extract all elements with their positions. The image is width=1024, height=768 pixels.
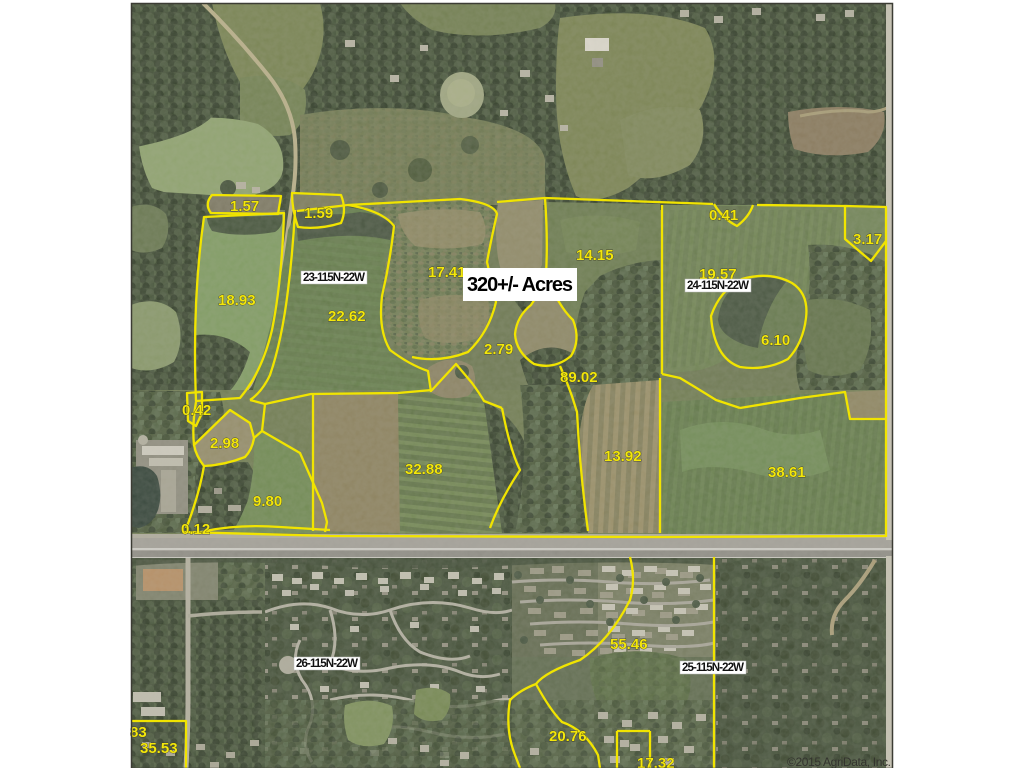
svg-text:25-115N-22W: 25-115N-22W — [682, 662, 744, 674]
svg-text:32.88: 32.88 — [405, 461, 443, 478]
svg-text:9.80: 9.80 — [253, 493, 282, 510]
svg-text:320+/- Acres: 320+/- Acres — [467, 274, 573, 296]
svg-text:13.92: 13.92 — [604, 448, 642, 465]
svg-text:6.10: 6.10 — [761, 332, 790, 349]
svg-text:©2015 AgriData, Inc.: ©2015 AgriData, Inc. — [787, 755, 891, 768]
svg-text:3.17: 3.17 — [853, 231, 882, 248]
svg-text:17.32: 17.32 — [637, 755, 675, 768]
svg-text:22.62: 22.62 — [328, 308, 366, 325]
svg-text:18.93: 18.93 — [218, 292, 256, 309]
svg-text:0.42: 0.42 — [182, 402, 211, 419]
svg-text:83: 83 — [130, 724, 147, 741]
svg-text:23-115N-22W: 23-115N-22W — [303, 272, 365, 284]
svg-text:2.98: 2.98 — [210, 435, 239, 452]
svg-text:55.46: 55.46 — [610, 636, 648, 653]
svg-text:89.02: 89.02 — [560, 369, 598, 386]
svg-text:1.57: 1.57 — [230, 198, 259, 215]
svg-text:14.15: 14.15 — [576, 247, 614, 264]
svg-text:1.59: 1.59 — [304, 205, 333, 222]
svg-text:35.53: 35.53 — [140, 740, 178, 757]
svg-text:24-115N-22W: 24-115N-22W — [687, 280, 749, 292]
svg-text:38.61: 38.61 — [768, 464, 806, 481]
svg-text:17.41: 17.41 — [428, 264, 466, 281]
svg-text:0.41: 0.41 — [709, 207, 738, 224]
svg-text:0.12: 0.12 — [181, 521, 210, 538]
svg-text:20.76: 20.76 — [549, 728, 587, 745]
svg-text:2.79: 2.79 — [484, 341, 513, 358]
svg-text:26-115N-22W: 26-115N-22W — [296, 658, 358, 670]
